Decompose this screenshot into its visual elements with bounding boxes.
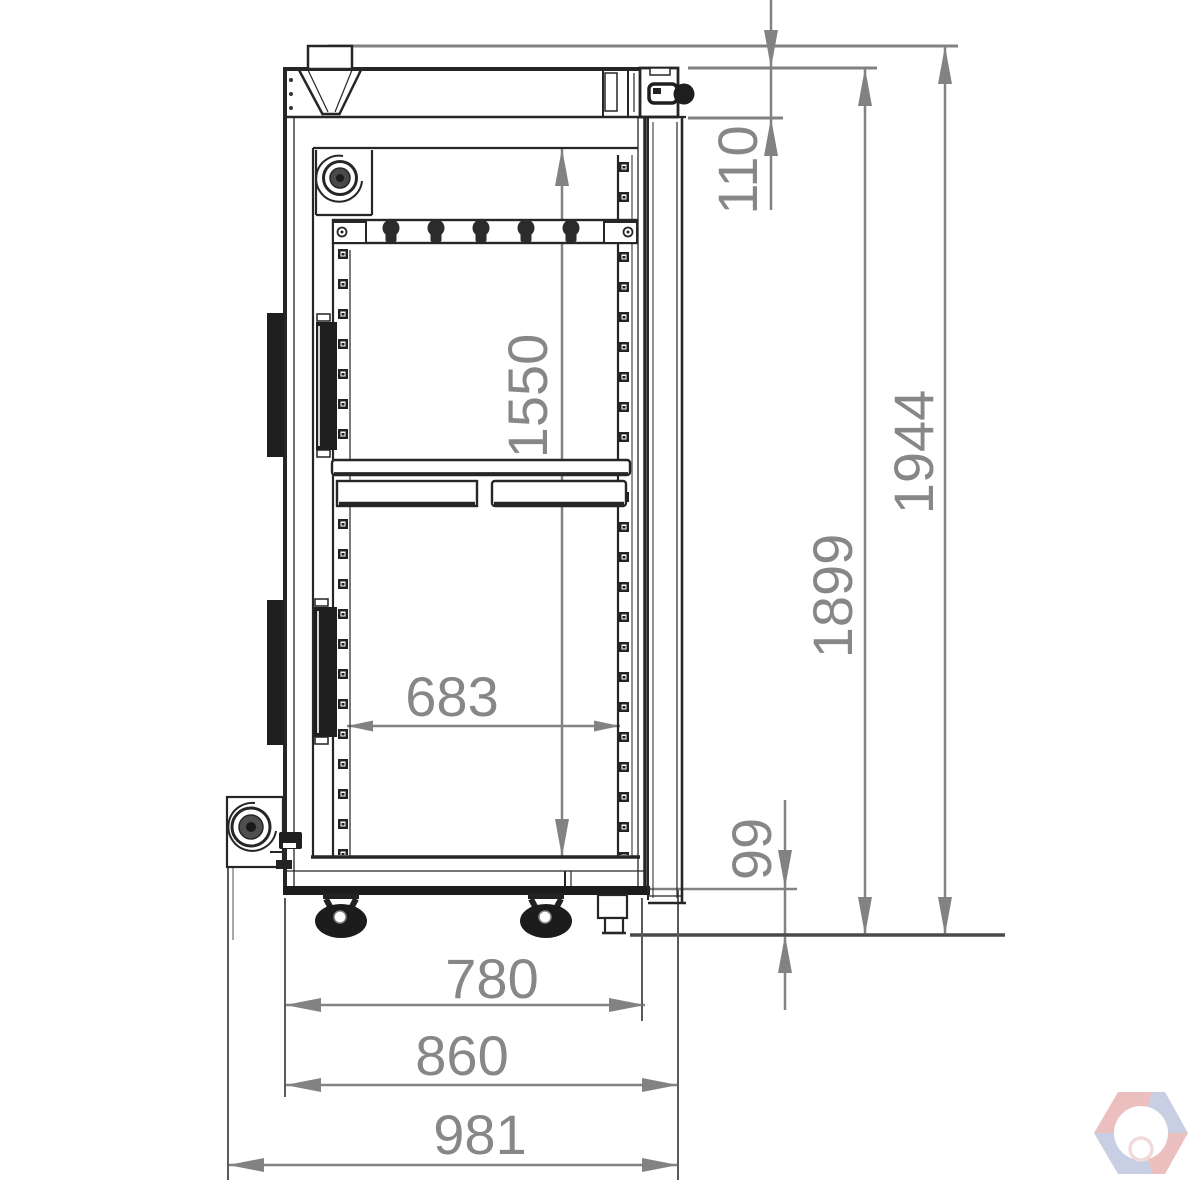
dimension-label-1899: 1899 xyxy=(805,534,861,659)
caster-front xyxy=(520,893,572,938)
dimension-label-780: 780 xyxy=(445,951,538,1007)
dimension-label-683: 683 xyxy=(405,669,498,725)
technical-drawing-page: 110 1550 1899 1944 683 99 780 860 981 xyxy=(0,0,1200,1200)
rear-fan-unit xyxy=(227,797,302,869)
mounting-bars xyxy=(267,313,337,745)
dimension-label-860: 860 xyxy=(415,1028,508,1084)
handle-knob xyxy=(674,84,695,105)
brand-logo-watermark xyxy=(1094,1092,1188,1174)
door-panel xyxy=(640,117,686,903)
dimension-label-981: 981 xyxy=(433,1107,526,1163)
mid-divider-shelf xyxy=(332,460,630,506)
dimension-label-110: 110 xyxy=(710,125,766,214)
cabinet-side-view-drawing xyxy=(0,0,1200,1200)
funnel-vent xyxy=(289,46,361,115)
top-fan xyxy=(316,150,372,215)
caster-rear xyxy=(315,893,367,938)
leveling-foot xyxy=(598,895,627,933)
dimension-label-99: 99 xyxy=(724,818,780,880)
top-cross-member xyxy=(333,220,637,244)
door-handle xyxy=(649,84,695,105)
dimension-label-1550: 1550 xyxy=(500,334,556,459)
dimension-label-1944: 1944 xyxy=(886,390,942,515)
